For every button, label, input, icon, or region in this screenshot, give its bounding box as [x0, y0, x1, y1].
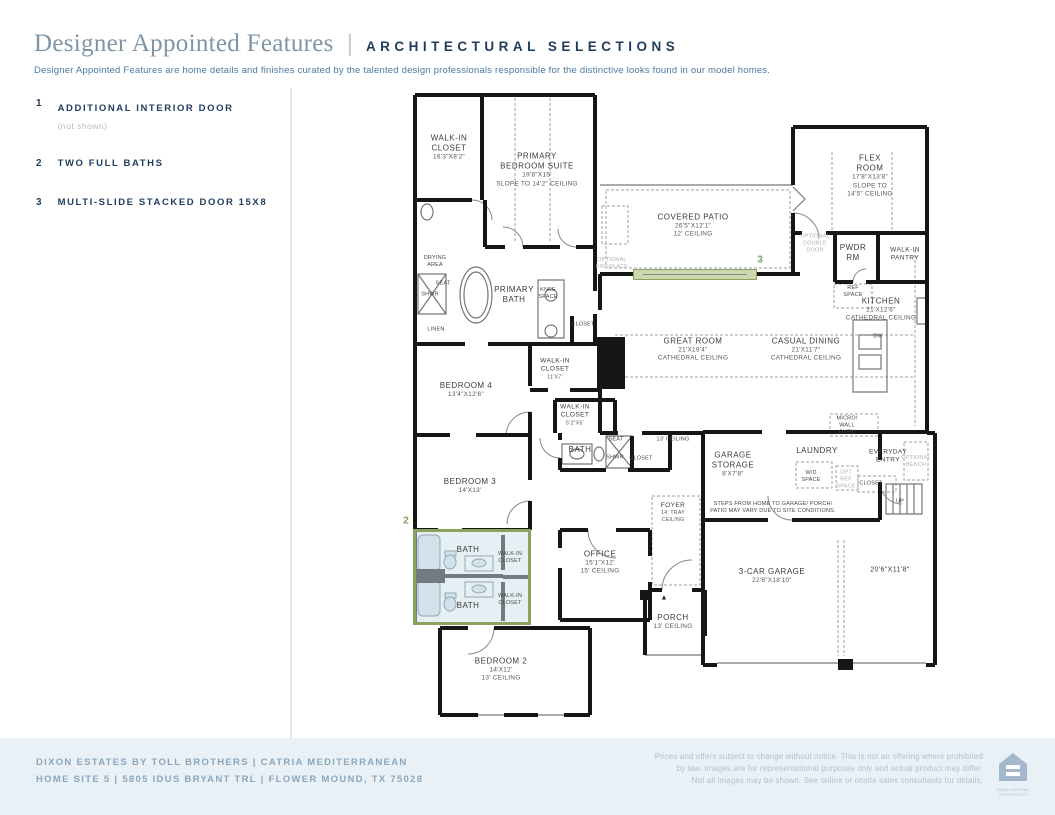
features-list: 1 ADDITIONAL INTERIOR DOOR (not shown) 2… [36, 98, 276, 236]
walls [415, 95, 935, 715]
feature-number: 1 [36, 98, 42, 131]
equal-housing-text: EQUAL HOUSING OPPORTUNITY [995, 788, 1031, 797]
feature-label: ADDITIONAL INTERIOR DOOR [58, 103, 234, 114]
footer-left: DIXON ESTATES BY TOLL BROTHERS | CATRIA … [36, 755, 423, 788]
plan-walls-svg [410, 88, 940, 738]
feature-label: TWO FULL BATHS [58, 158, 164, 169]
address-line: HOME SITE 5 | 5805 IDUS BRYANT TRL | FLO… [36, 772, 423, 789]
disclaimer: Prices and offers subject to change with… [655, 751, 983, 787]
disclaimer-line: by law. Images are for representational … [655, 763, 983, 775]
feature-number: 3 [36, 197, 42, 208]
feature-item-1: 1 ADDITIONAL INTERIOR DOOR (not shown) [36, 98, 276, 131]
fixture-shapes [421, 204, 604, 461]
disclaimer-line: Not all images may be shown. See online … [655, 775, 983, 787]
vertical-divider [290, 88, 292, 738]
title-separator: | [347, 30, 353, 58]
feature-item-2: 2 TWO FULL BATHS [36, 158, 276, 169]
footer: DIXON ESTATES BY TOLL BROTHERS | CATRIA … [0, 738, 1055, 815]
equal-housing-logo: EQUAL HOUSING OPPORTUNITY [995, 752, 1031, 797]
community-line: DIXON ESTATES BY TOLL BROTHERS | CATRIA … [36, 755, 423, 772]
feature-item-3: 3 MULTI-SLIDE STACKED DOOR 15X8 [36, 197, 276, 208]
feature-label: MULTI-SLIDE STACKED DOOR 15X8 [58, 197, 268, 208]
feature-number: 2 [36, 158, 42, 169]
page-description: Designer Appointed Features are home det… [34, 65, 1024, 76]
flyer-page: Designer Appointed Features | ARCHITECTU… [0, 0, 1055, 815]
title-row: Designer Appointed Features | ARCHITECTU… [34, 30, 1024, 58]
floor-plan: 23 WALK-INCLOSET16'3"X8'2"PRIMARYBEDROOM… [410, 88, 940, 738]
equal-housing-icon [998, 752, 1028, 782]
page-title: Designer Appointed Features [34, 30, 334, 58]
feature-marker-2: 2 [403, 516, 409, 527]
feature-note: (not shown) [58, 121, 234, 131]
fixture-lines [418, 185, 928, 715]
dashed-lines [515, 98, 928, 656]
header: Designer Appointed Features | ARCHITECTU… [34, 30, 1024, 76]
section-heading: ARCHITECTURAL SELECTIONS [366, 39, 679, 54]
disclaimer-line: Prices and offers subject to change with… [655, 751, 983, 763]
